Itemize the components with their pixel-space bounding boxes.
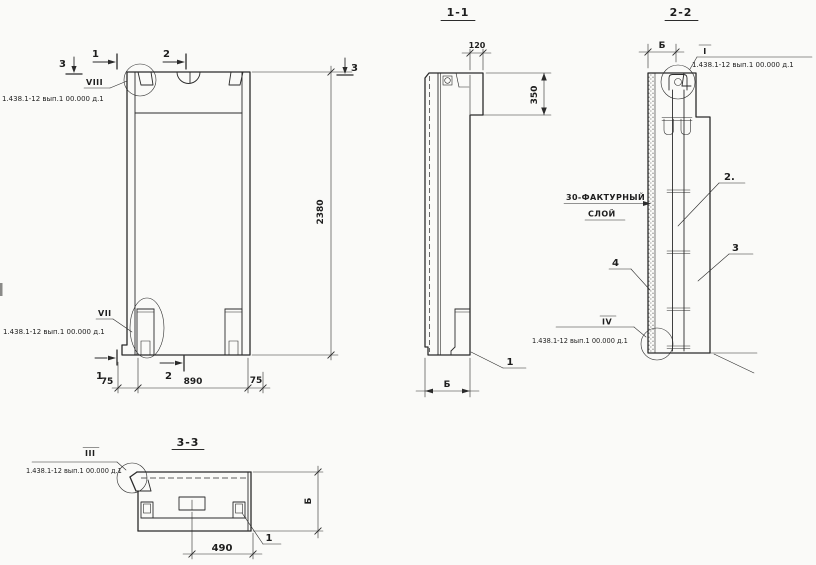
dim-right-value: 75	[250, 376, 263, 386]
elevation-view: VIII 1.438.1-12 вып.1 00.000 д.1 VII 1.4…	[2, 49, 358, 393]
detail-VII-ref: 1.438.1-12 вып.1 00.000 д.1	[3, 328, 105, 336]
callout-3-label: 3	[732, 243, 739, 254]
reinforcement-frame	[667, 90, 690, 351]
top-embed-detail	[443, 73, 469, 87]
dim-thickness-b: Б	[416, 358, 479, 397]
dim-thickness-value: Б	[444, 380, 451, 390]
dim-left-value: 75	[101, 377, 114, 387]
top-right-cutout	[229, 72, 243, 85]
detail-III-leader: III 1.438.1-12 вып.1 00.000 д.1	[26, 448, 126, 476]
detail-III-ref: 1.438.1-12 вып.1 00.000 д.1	[26, 467, 122, 475]
bottom-left-channel	[137, 309, 154, 355]
detail-VII-leader: VII 1.438.1-12 вып.1 00.000 д.1	[3, 309, 132, 336]
panel-outline	[122, 72, 250, 355]
dim-height-2380: 2380	[252, 66, 352, 360]
dim-thickness-value-33: Б	[304, 497, 314, 504]
section-mark-2-top: 2	[163, 49, 186, 69]
section-mark-3-right-label: 3	[351, 63, 358, 74]
dim-width-120: 120	[462, 41, 491, 70]
detail-III-mark: III	[85, 449, 95, 458]
drawing-sheet: VIII 1.438.1-12 вып.1 00.000 д.1 VII 1.4…	[0, 0, 816, 565]
dim-width-value: 120	[469, 41, 486, 50]
scan-artifact	[0, 283, 3, 296]
dim-thickness-b-33: Б	[253, 466, 323, 538]
dim-top-b: Б	[639, 41, 684, 68]
section-1-1-outline	[425, 73, 483, 355]
detail-VIII-mark: VIII	[86, 78, 103, 87]
callout-panel-3: 3	[698, 243, 753, 281]
section-mark-2-bottom-label: 2	[165, 371, 172, 382]
right-corner-angle-inner	[236, 504, 243, 513]
detail-IV-leader: IV 1.438.1-12 вып.1 00.000 д.1	[532, 316, 646, 345]
facing-layer-label: 30-ФАКТУРНЫЙ СЛОЙ	[564, 191, 651, 220]
bottom-embed-block	[451, 309, 470, 355]
detail-circle-IV	[641, 328, 673, 360]
section-mark-3-left-label: 3	[59, 59, 66, 70]
drawing-canvas: VIII 1.438.1-12 вып.1 00.000 д.1 VII 1.4…	[0, 0, 816, 565]
callout-1-label: 1	[507, 357, 514, 368]
section-mark-3-left: 3	[59, 57, 82, 74]
dim-depth-350: 350	[472, 73, 551, 115]
detail-VIII-ref: 1.438.1-12 вып.1 00.000 д.1	[2, 95, 104, 103]
section-3-3-body	[130, 472, 251, 531]
dim-top-b-value: Б	[659, 41, 666, 51]
facing-label-line2: СЛОЙ	[588, 208, 616, 219]
detail-I-leader: I 1.438.1-12 вып.1 00.000 д.1	[690, 45, 812, 69]
bottom-right-channel	[225, 309, 242, 355]
detail-I-ref: 1.438.1-12 вып.1 00.000 д.1	[692, 61, 794, 69]
callout-facing-4: 4	[609, 258, 650, 290]
left-corner-angle	[141, 502, 153, 518]
top-center-arc-cutout	[177, 72, 200, 83]
dim-opening-value: 490	[212, 543, 233, 554]
section-2-2-outline	[648, 73, 710, 353]
detail-IV-ref: 1.438.1-12 вып.1 00.000 д.1	[532, 337, 628, 345]
section-1-1: 1-1 1	[416, 6, 551, 397]
callout-2-label: 2.	[724, 172, 735, 183]
dim-depth-value: 350	[530, 86, 540, 105]
dim-bottom-widths: 75 890 75	[101, 358, 270, 393]
detail-I-mark: I	[703, 47, 706, 56]
section-mark-3-right: 3	[337, 58, 358, 75]
section-1-1-title: 1-1	[447, 6, 470, 19]
callout-1-label-33: 1	[266, 533, 273, 544]
callout-4-label: 4	[612, 258, 619, 269]
right-corner-angle	[233, 502, 245, 518]
section-1-1-callout-1: 1	[471, 352, 526, 368]
detail-IV-mark: IV	[602, 318, 612, 327]
callout-frame-2: 2.	[678, 172, 745, 226]
detail-VII-mark: VII	[98, 309, 112, 318]
detail-VIII-leader: VIII 1.438.1-12 вып.1 00.000 д.1	[2, 78, 127, 103]
section-3-3: 3-3 III	[26, 436, 323, 559]
section-2-2: 2-2	[532, 6, 812, 373]
detail-circle-I	[661, 65, 695, 99]
facing-layer-stipple	[649, 74, 655, 353]
section-2-2-title: 2-2	[670, 6, 693, 19]
section-mark-1-top-label: 1	[92, 49, 99, 60]
bottom-diagonal-leader	[714, 354, 754, 373]
dim-height-value: 2380	[316, 199, 326, 224]
lifting-loop	[662, 75, 692, 135]
dim-opening-490: 490	[183, 512, 262, 559]
section-mark-2-bottom: 2	[160, 356, 184, 382]
top-left-cutout	[138, 72, 153, 85]
section-mark-2-top-label: 2	[163, 49, 170, 60]
section-mark-1-top: 1	[92, 49, 117, 69]
dim-center-value: 890	[184, 377, 203, 387]
left-corner-angle-inner	[144, 504, 151, 513]
facing-label-line1: 30-ФАКТУРНЫЙ	[566, 191, 645, 202]
section-3-3-title: 3-3	[177, 436, 200, 449]
